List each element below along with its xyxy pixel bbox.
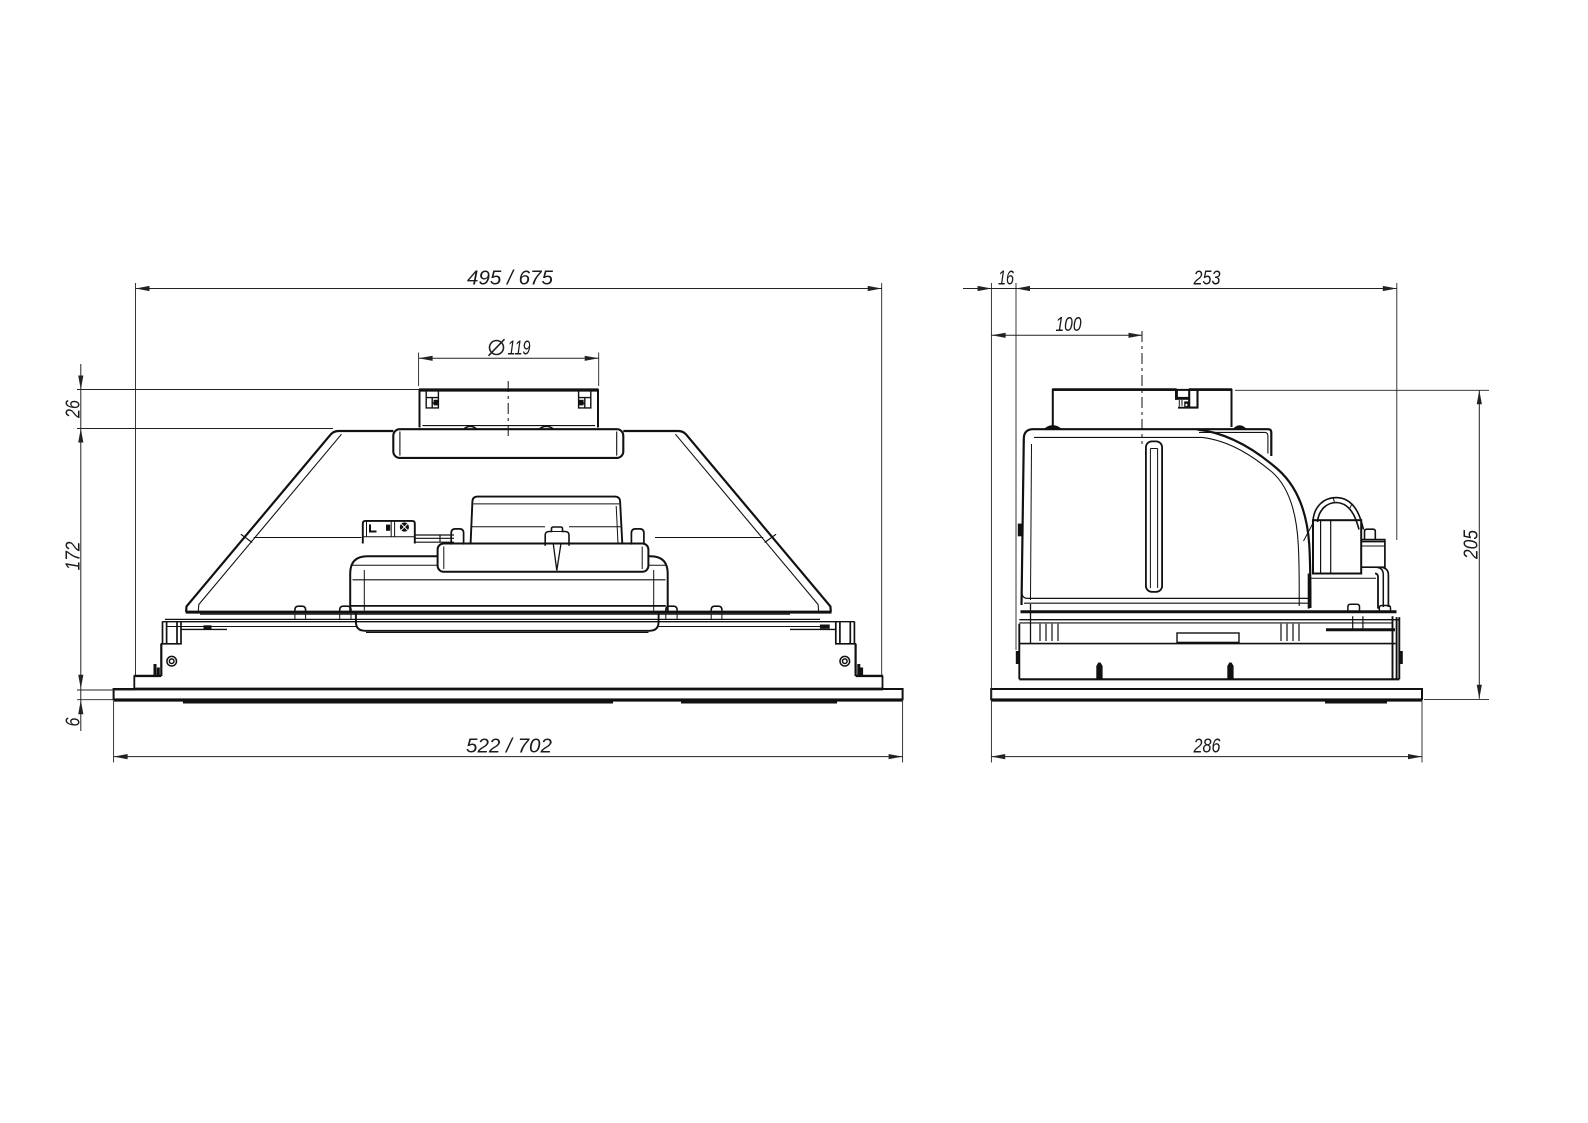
svg-text:26: 26 — [62, 400, 85, 419]
svg-text:172: 172 — [62, 541, 85, 570]
svg-text:6: 6 — [62, 717, 85, 726]
svg-text:100: 100 — [1056, 313, 1082, 336]
svg-text:16: 16 — [998, 267, 1014, 290]
svg-text:205: 205 — [1460, 530, 1483, 560]
svg-text:253: 253 — [1193, 267, 1221, 290]
svg-text:286: 286 — [1193, 735, 1221, 758]
svg-text:119: 119 — [508, 337, 531, 360]
svg-text:522 / 702: 522 / 702 — [466, 735, 553, 758]
svg-text:495 / 675: 495 / 675 — [467, 267, 554, 290]
